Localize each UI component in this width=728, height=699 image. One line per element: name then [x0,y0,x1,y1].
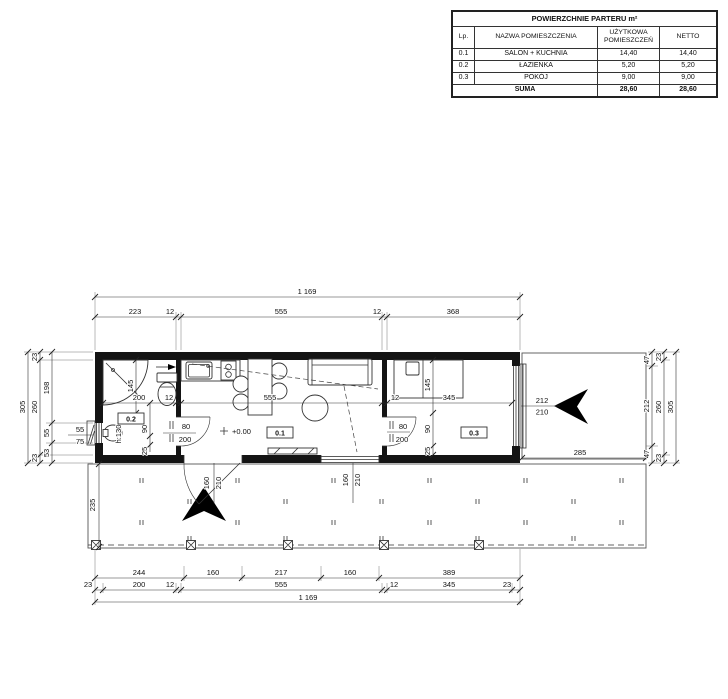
dim-right-outer: 305 [666,401,675,414]
entry-door-width: 160 [202,477,211,490]
coffee-table [302,395,328,421]
floor-plan-drawing: 1 169 223 12 555 12 368 244 160 217 160 … [0,0,728,699]
dim-left-win-1: 198 [42,382,51,395]
dim-bottom-a3: 217 [275,568,288,577]
dim-right-mid-1: 23 [654,353,663,361]
level-text: +0.00 [232,427,251,436]
entry-door [184,455,242,504]
dim-bottom-a4: 160 [344,568,357,577]
room-label-bedroom: 0.3 [461,427,487,438]
dim-top-total: 1 169 [298,287,317,296]
svg-text:0.1: 0.1 [275,431,285,438]
dim-bottom-total: 1 169 [299,593,318,602]
dim-bottom-a1: 244 [133,568,146,577]
dim-bottom-b7: 23 [503,580,511,589]
dim-right-mid-2: 260 [654,401,663,414]
kitchen-sink [186,362,212,379]
room-label-living: 0.1 [267,427,293,438]
svg-text:0.3: 0.3 [469,431,479,438]
east-window-width: 212 [536,396,549,405]
dim-left-mid-3: 23 [30,454,39,462]
dim-left-outer: 305 [18,401,27,414]
vent-arrow-right-icon [156,364,176,370]
south-window [321,455,379,463]
dim-window-sill: 75 [76,437,84,446]
dim-window-w: 55 [76,425,84,434]
dim-int-3: 555 [264,393,277,402]
dim-bath-25: 25 [140,447,149,455]
dim-basin-height: h:130 [114,425,123,444]
stove [221,361,236,380]
dim-bottom-a5: 389 [443,568,456,577]
dim-bottom-b1: 23 [84,580,92,589]
floor-plan-sheet: POWIERZCHNIE PARTERU m² Lp. NAZWA POMIES… [0,0,728,699]
dim-top-3: 555 [275,307,288,316]
dining-table [233,359,287,415]
dim-int-5: 345 [443,393,456,402]
dim-right-win-3: 47 [642,450,651,458]
dim-bath-depth: 145 [126,380,135,393]
dim-int-1: 200 [133,393,146,402]
dim-right-win-2: 212 [642,400,651,413]
terrace-bottom [88,464,646,550]
dim-bath-90: 90 [140,425,149,433]
entry-door-height: 210 [214,477,223,490]
dim-right-win-1: 47 [642,356,651,364]
dim-top-1: 223 [129,307,142,316]
svg-text:0.2: 0.2 [126,417,136,424]
terrace-window-height: 210 [353,474,362,487]
bath-door-height: 200 [179,435,192,444]
dim-bedroom-90: 90 [423,425,432,433]
sofa [308,359,372,385]
dim-bedroom-25: 25 [423,447,432,455]
dim-left-win-3: 53 [42,449,51,457]
west-window [87,421,102,445]
bath-door-width: 80 [182,422,190,431]
dim-left-win-2: 55 [42,429,51,437]
dim-top-2: 12 [166,307,174,316]
room-label-bathroom: 0.2 [118,413,144,424]
dim-int-2: 12 [165,393,173,402]
dim-deck-width: 285 [574,448,587,457]
dim-bottom-b3: 12 [166,580,174,589]
tv-bench [268,448,317,454]
dim-bottom-a2: 160 [207,568,220,577]
dim-int-4: 12 [391,393,399,402]
bedroom-door-height: 200 [396,435,409,444]
entrance-arrow-icon [182,487,226,521]
bedroom-door-width: 80 [399,422,407,431]
terrace-window-width: 160 [341,474,350,487]
section-line [344,386,357,452]
terrace-arrow-icon [554,389,588,424]
dim-deck-depth: 235 [88,499,97,512]
east-window-height: 210 [536,408,549,417]
dim-bed-width: 145 [423,379,432,392]
dim-right-mid-3: 23 [654,454,663,462]
dim-left-mid-2: 260 [30,401,39,414]
dim-bottom-b4: 555 [275,580,288,589]
level-marker [220,427,228,435]
dim-top-5: 368 [447,307,460,316]
dim-bottom-b6: 345 [443,580,456,589]
dim-left-mid-1: 23 [30,353,39,361]
dim-bottom-b2: 200 [133,580,146,589]
dim-top-4: 12 [373,307,381,316]
dim-bottom-b5: 12 [390,580,398,589]
